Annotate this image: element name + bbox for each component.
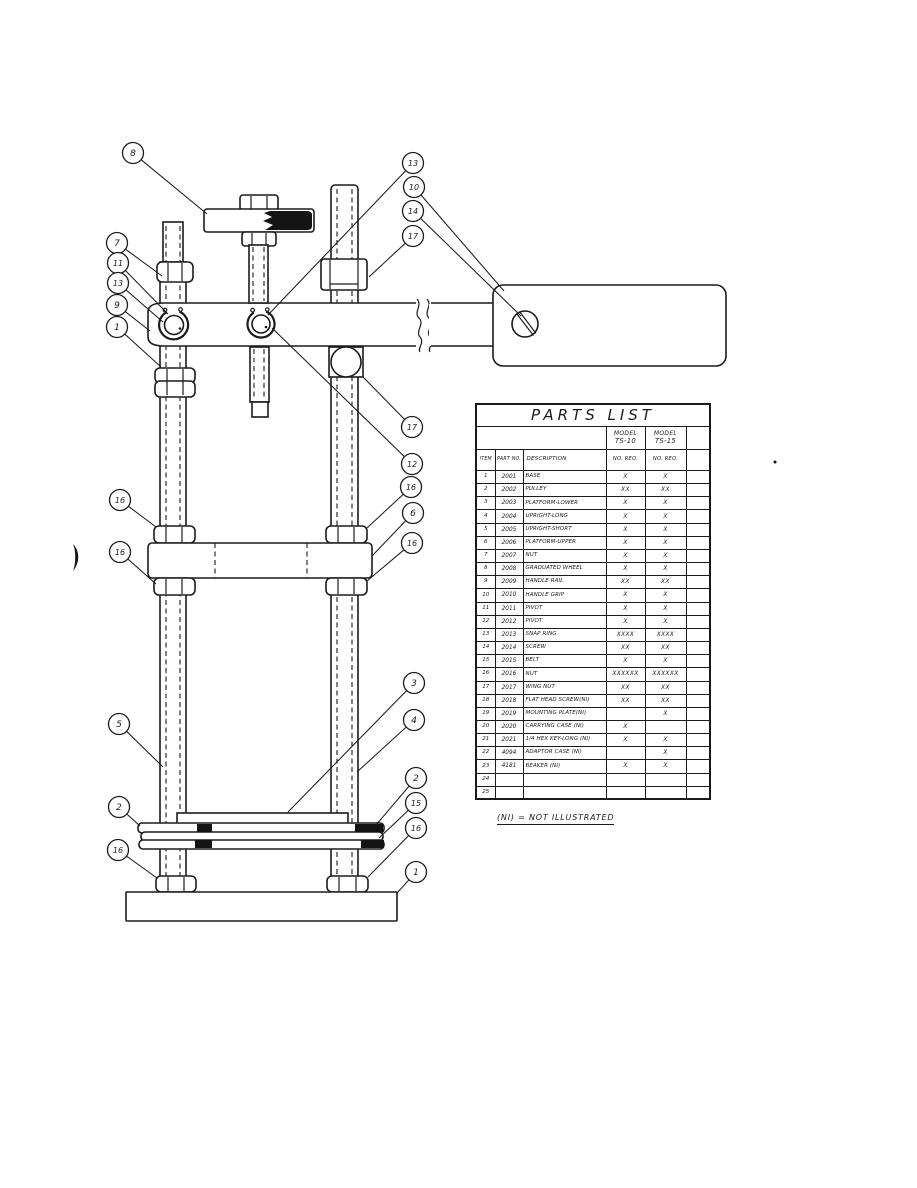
item-cell: 16: [476, 668, 495, 681]
part-no-cell: 2008: [495, 563, 523, 576]
table-row: 82008GRADUATED WHEELXX: [476, 563, 710, 576]
item-cell: 6: [476, 536, 495, 549]
model-row-extra-blank: [686, 427, 710, 450]
model-ts10-header: MODEL TS-10: [606, 427, 645, 450]
ts10-qty-cell: XX: [606, 484, 645, 497]
blank-header: [686, 450, 710, 471]
part-no-cell: 2007: [495, 549, 523, 562]
parts-list-title-row: PARTS LIST: [476, 404, 710, 427]
blank-cell: [686, 602, 710, 615]
column-header-row: ITEM PART NO. DESCRIPTION NO. REQ. NO. R…: [476, 450, 710, 471]
callout-number: 5: [116, 720, 122, 730]
callout-leader-line: [363, 377, 405, 420]
item-cell: 3: [476, 497, 495, 510]
part-no-cell: 2013: [495, 628, 523, 641]
callout-16-19: 16: [367, 533, 423, 582]
ts10-qty-cell: [606, 786, 645, 799]
ts10-qty-cell: X: [606, 760, 645, 773]
handle-rail: [148, 299, 497, 352]
page-artifact-crescent: [73, 544, 78, 571]
part-no-cell: 2017: [495, 681, 523, 694]
screw-lower-shaft: [250, 347, 269, 417]
ts10-qty-cell: X: [606, 549, 645, 562]
graduated-wheel: [204, 195, 314, 303]
table-row: 62006PLATFORM-UPPERXX: [476, 536, 710, 549]
description-cell: PIVOT: [523, 615, 606, 628]
description-header: DESCRIPTION: [523, 450, 606, 471]
parts-list-title: PARTS LIST: [476, 404, 710, 427]
description-cell: ADAPTOR CASE (NI): [523, 747, 606, 760]
ts15-qty-cell: XX: [645, 576, 686, 589]
belt-segment-3: [195, 840, 212, 848]
ts15-qty-cell: X: [645, 655, 686, 668]
belt-segment-2: [355, 824, 383, 832]
callout-number: 12: [407, 460, 417, 469]
nut-above-rail: [157, 262, 193, 282]
table-row: 52005UPRIGHT-SHORTXX: [476, 523, 710, 536]
part-no-cell: 2012: [495, 615, 523, 628]
callout-number: 2: [413, 774, 419, 784]
ts15-qty-cell: XX: [645, 484, 686, 497]
table-row: 24: [476, 773, 710, 786]
part-no-cell: 4094: [495, 747, 523, 760]
description-cell: SNAP RING: [523, 628, 606, 641]
item-cell: 12: [476, 615, 495, 628]
ts15-qty-cell: X: [645, 497, 686, 510]
callout-number: 11: [113, 259, 123, 268]
description-cell: NUT: [523, 668, 606, 681]
item-cell: 8: [476, 563, 495, 576]
callout-leader-line: [421, 218, 522, 316]
model-number: TS-15: [646, 438, 686, 445]
table-row: 22002PULLEYXXXX: [476, 484, 710, 497]
ts10-qty-cell: X: [606, 720, 645, 733]
ts10-qty-cell: X: [606, 510, 645, 523]
callout-number: 8: [130, 149, 136, 159]
nut-below-rail: [155, 368, 195, 397]
callout-number: 16: [406, 483, 416, 492]
platform-upper: [148, 543, 372, 578]
table-row: 182018FLAT HEAD SCREW(NI)XXXX: [476, 694, 710, 707]
description-cell: PIVOT: [523, 602, 606, 615]
belt-segment-1: [197, 824, 212, 832]
table-row: 122012PIVOTXX: [476, 615, 710, 628]
callout-2-9: 2: [109, 797, 141, 827]
item-cell: 15: [476, 655, 495, 668]
callout-leader-line: [372, 521, 406, 556]
part-no-cell: 2002: [495, 484, 523, 497]
nut-platform-right-bottom: [326, 578, 367, 595]
item-cell: 22: [476, 747, 495, 760]
pulleys-and-belt: [138, 823, 384, 849]
description-cell: HANDLE RAIL: [523, 576, 606, 589]
model-number: TS-10: [607, 438, 645, 445]
item-cell: 17: [476, 681, 495, 694]
blank-cell: [686, 694, 710, 707]
part-no-cell: 2006: [495, 536, 523, 549]
blank-cell: [686, 497, 710, 510]
blank-cell: [686, 615, 710, 628]
table-row: 112011PIVOTXX: [476, 602, 710, 615]
nut-platform-left-top: [154, 526, 195, 543]
item-header: ITEM: [476, 450, 495, 471]
callout-8-0: 8: [123, 143, 208, 215]
part-no-cell: 2004: [495, 510, 523, 523]
table-row: 132013SNAP RINGXXXXXXXX: [476, 628, 710, 641]
callout-leader-line: [127, 856, 158, 878]
callout-number: 16: [115, 496, 125, 505]
callout-number: 13: [408, 159, 418, 168]
description-cell: BASE: [523, 471, 606, 484]
ts10-qty-cell: [606, 707, 645, 720]
blank-cell: [686, 707, 710, 720]
callout-leader-line: [126, 249, 163, 276]
ts15-qty-cell: X: [645, 760, 686, 773]
description-cell: BELT: [523, 655, 606, 668]
blank-cell: [686, 589, 710, 602]
model-ts15-header: MODEL TS-15: [645, 427, 686, 450]
blank-cell: [686, 786, 710, 799]
part-no-cell: [495, 786, 523, 799]
callout-number: 16: [115, 548, 125, 557]
ts10-qty-cell: XX: [606, 681, 645, 694]
description-cell: NUT: [523, 549, 606, 562]
callout-5-8: 5: [109, 714, 164, 768]
callout-leader-line: [128, 506, 156, 527]
callout-leader-line: [367, 494, 403, 528]
ts10-qty-cell: X: [606, 497, 645, 510]
ts10-qty-cell: X: [606, 523, 645, 536]
part-no-cell: 2019: [495, 707, 523, 720]
model-row-blank: [476, 427, 606, 450]
blank-cell: [686, 642, 710, 655]
item-cell: 7: [476, 549, 495, 562]
callout-17-15: 17: [363, 377, 423, 438]
ts10-qty-cell: XX: [606, 642, 645, 655]
blank-cell: [686, 668, 710, 681]
callout-leader-line: [127, 731, 164, 767]
callout-number: 1: [413, 868, 419, 878]
part-no-cell: 2021: [495, 734, 523, 747]
nut-platform-right-top: [326, 526, 367, 543]
callout-4-21: 4: [357, 710, 425, 773]
callout-number: 2: [116, 803, 122, 813]
table-row: 172017WING NUTXXXX: [476, 681, 710, 694]
blank-cell: [686, 563, 710, 576]
ts10-qty-cell: X: [606, 615, 645, 628]
blank-cell: [686, 510, 710, 523]
blank-cell: [686, 720, 710, 733]
table-row: 202020CARRYING CASE (NI)X: [476, 720, 710, 733]
table-row: 12001BASEXX: [476, 471, 710, 484]
description-cell: UPRIGHT-LONG: [523, 510, 606, 523]
item-cell: 20: [476, 720, 495, 733]
callout-number: 15: [411, 799, 421, 808]
ts10-qty-cell: XX: [606, 576, 645, 589]
screw-pivot-tip: [252, 402, 268, 417]
handle-grip: [493, 285, 726, 366]
item-cell: 5: [476, 523, 495, 536]
description-cell: [523, 786, 606, 799]
table-row: 142014SCREWXXXX: [476, 642, 710, 655]
callout-number: 7: [114, 239, 120, 249]
base-plate: [126, 892, 397, 921]
table-row: 162016NUTXXXXXXXXXXXX: [476, 668, 710, 681]
description-cell: WING NUT: [523, 681, 606, 694]
ts15-qty-cell: X: [645, 747, 686, 760]
ts15-qty-cell: XX: [645, 642, 686, 655]
table-row: 72007NUTXX: [476, 549, 710, 562]
callout-number: 1: [114, 323, 120, 333]
item-cell: 23: [476, 760, 495, 773]
parts-list-table: PARTS LIST MODEL TS-10 MODEL TS-15 ITEM …: [475, 403, 711, 800]
callout-14-13: 14: [403, 201, 522, 317]
table-row: 192019MOUNTING PLATE(NI)X: [476, 707, 710, 720]
exploded-parts-diagram: 8711139116165216131014171712166163421516…: [0, 0, 917, 1188]
callout-number: 6: [410, 509, 416, 519]
ts15-qty-cell: XX: [645, 681, 686, 694]
blank-cell: [686, 471, 710, 484]
callout-leader-line: [369, 243, 405, 277]
description-cell: BEAKER (NI): [523, 760, 606, 773]
part-no-cell: 2005: [495, 523, 523, 536]
callout-1-25: 1: [397, 862, 427, 894]
description-cell: PLATFORM-UPPER: [523, 536, 606, 549]
item-cell: 25: [476, 786, 495, 799]
ts15-qty-cell: X: [645, 536, 686, 549]
manual-page: 8711139116165216131014171712166163421516…: [0, 0, 917, 1188]
wing-nut: [321, 259, 367, 290]
table-row: 2120211/4 HEX KEY-LONG (NI)XX: [476, 734, 710, 747]
item-cell: 14: [476, 642, 495, 655]
ts10-qty-cell: X: [606, 734, 645, 747]
part-no-cell: 2014: [495, 642, 523, 655]
blank-cell: [686, 655, 710, 668]
ts15-qty-cell: XXXX: [645, 628, 686, 641]
ts15-qty-cell: X: [645, 734, 686, 747]
ts15-qty-cell: X: [645, 549, 686, 562]
blank-cell: [686, 681, 710, 694]
table-row: 32003PLATFORM-LOWERXX: [476, 497, 710, 510]
part-no-cell: 2009: [495, 576, 523, 589]
callout-number: 14: [408, 207, 418, 216]
callout-number: 10: [409, 183, 419, 192]
ts10-qty-header: NO. REQ.: [606, 450, 645, 471]
ts10-qty-cell: [606, 773, 645, 786]
callout-leader-line: [141, 160, 207, 214]
part-no-cell: 2011: [495, 602, 523, 615]
callout-number: 17: [408, 232, 419, 241]
part-no-cell: 4181: [495, 760, 523, 773]
item-cell: 2: [476, 484, 495, 497]
blank-cell: [686, 536, 710, 549]
description-cell: UPRIGHT-SHORT: [523, 523, 606, 536]
table-row: 102010HANDLE GRIPXX: [476, 589, 710, 602]
description-cell: PULLEY: [523, 484, 606, 497]
model-header-row: MODEL TS-10 MODEL TS-15: [476, 427, 710, 450]
part-no-cell: 2015: [495, 655, 523, 668]
item-cell: 13: [476, 628, 495, 641]
wheel-nut-lower: [242, 232, 276, 246]
callout-number: 16: [411, 824, 421, 833]
item-cell: 21: [476, 734, 495, 747]
clamp-ball: [329, 347, 363, 377]
ts10-qty-cell: X: [606, 563, 645, 576]
item-cell: 4: [476, 510, 495, 523]
blank-cell: [686, 760, 710, 773]
ts15-qty-header: NO. REQ.: [645, 450, 686, 471]
item-cell: 1: [476, 471, 495, 484]
wheel-nut-upper: [240, 195, 278, 210]
not-illustrated-note: (NI) = NOT ILLUSTRATED: [497, 813, 614, 825]
ts15-qty-cell: X: [645, 707, 686, 720]
description-cell: HANDLE GRIP: [523, 589, 606, 602]
nut-base-right: [327, 876, 368, 892]
ts10-qty-cell: X: [606, 589, 645, 602]
ts10-qty-cell: XX: [606, 694, 645, 707]
description-cell: CARRYING CASE (NI): [523, 720, 606, 733]
screw-upper-shaft: [249, 245, 268, 303]
ts10-qty-cell: X: [606, 536, 645, 549]
item-cell: 18: [476, 694, 495, 707]
callout-number: 3: [411, 679, 417, 689]
page-artifact-dot: [774, 461, 777, 464]
callout-leader-line: [125, 312, 150, 332]
table-row: 152015BELTXX: [476, 655, 710, 668]
item-cell: 19: [476, 707, 495, 720]
ts10-qty-cell: X: [606, 471, 645, 484]
ts10-qty-cell: XXXX: [606, 628, 645, 641]
callout-number: 4: [411, 716, 417, 726]
callout-number: 17: [407, 423, 418, 432]
part-no-header: PART NO.: [495, 450, 523, 471]
ts10-qty-cell: [606, 747, 645, 760]
table-row: 42004UPRIGHT-LONGXX: [476, 510, 710, 523]
blank-cell: [686, 734, 710, 747]
ts15-qty-cell: X: [645, 563, 686, 576]
description-cell: [523, 773, 606, 786]
part-no-cell: [495, 773, 523, 786]
callout-16-6: 16: [110, 490, 157, 528]
callout-17-14: 17: [369, 226, 424, 278]
ts15-qty-cell: X: [645, 523, 686, 536]
description-cell: FLAT HEAD SCREW(NI): [523, 694, 606, 707]
callout-number: 16: [407, 539, 417, 548]
item-cell: 11: [476, 602, 495, 615]
callout-leader-line: [421, 195, 504, 291]
grip-screw-head: [512, 311, 538, 337]
table-row: 25: [476, 786, 710, 799]
blank-cell: [686, 628, 710, 641]
ts15-qty-cell: [645, 786, 686, 799]
description-cell: GRADUATED WHEEL: [523, 563, 606, 576]
blank-cell: [686, 747, 710, 760]
callout-number: 16: [113, 846, 123, 855]
blank-cell: [686, 523, 710, 536]
pulley-disc-3: [139, 840, 384, 849]
part-no-cell: 2010: [495, 589, 523, 602]
callout-number: 9: [114, 301, 120, 311]
part-no-cell: 2016: [495, 668, 523, 681]
ts15-qty-cell: [645, 720, 686, 733]
ts15-qty-cell: X: [645, 602, 686, 615]
description-cell: MOUNTING PLATE(NI): [523, 707, 606, 720]
item-cell: 9: [476, 576, 495, 589]
ts10-qty-cell: XXXXXX: [606, 668, 645, 681]
ts10-qty-cell: X: [606, 602, 645, 615]
nut-platform-left-bottom: [154, 578, 195, 595]
ts15-qty-cell: X: [645, 615, 686, 628]
callout-leader-line: [127, 814, 140, 826]
description-cell: SCREW: [523, 642, 606, 655]
belt-segment-4: [361, 840, 384, 848]
part-no-cell: 2003: [495, 497, 523, 510]
ts15-qty-cell: X: [645, 589, 686, 602]
table-row: 92009HANDLE RAILXXXX: [476, 576, 710, 589]
part-no-cell: 2018: [495, 694, 523, 707]
blank-cell: [686, 576, 710, 589]
description-cell: 1/4 HEX KEY-LONG (NI): [523, 734, 606, 747]
item-cell: 10: [476, 589, 495, 602]
blank-cell: [686, 773, 710, 786]
table-row: 224094ADAPTOR CASE (NI)X: [476, 747, 710, 760]
callout-number: 13: [113, 279, 123, 288]
blank-cell: [686, 549, 710, 562]
ts10-qty-cell: X: [606, 655, 645, 668]
ts15-qty-cell: X: [645, 471, 686, 484]
callout-leader-line: [397, 880, 409, 893]
ts15-qty-cell: X: [645, 510, 686, 523]
ts15-qty-cell: XX: [645, 694, 686, 707]
ts15-qty-cell: XXXXXX: [645, 668, 686, 681]
part-no-cell: 2001: [495, 471, 523, 484]
table-row: 234181BEAKER (NI)XX: [476, 760, 710, 773]
ts15-qty-cell: [645, 773, 686, 786]
nut-base-left: [156, 876, 196, 892]
part-no-cell: 2020: [495, 720, 523, 733]
blank-cell: [686, 484, 710, 497]
description-cell: PLATFORM-LOWER: [523, 497, 606, 510]
item-cell: 24: [476, 773, 495, 786]
callout-leader-line: [376, 786, 409, 825]
